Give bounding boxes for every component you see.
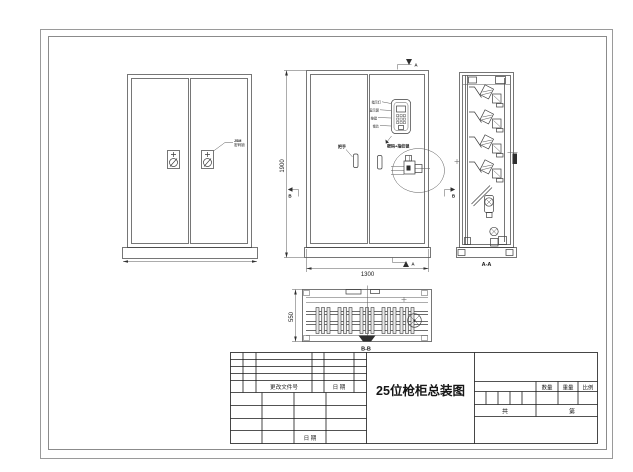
qty-label: 数量 [542,383,553,391]
front-lock-leader [214,143,234,152]
keypad-label-3: 锁芯 [373,124,380,129]
side-handle [513,154,518,165]
assembly-view: 1900 1300 A A B B [280,59,456,278]
scale-label: 比例 [583,383,594,391]
marker-b-left-text: B [288,194,292,199]
keypad-label-1: 显示屏 [369,109,379,113]
section-marker-b-left: B [288,187,299,198]
dim-width: 1300 [307,249,429,278]
section-b-label: B-B [361,347,371,353]
dim-height: 1900 [280,71,306,258]
revision-date-label: 日 期 [333,384,346,391]
front-lock-label-line2: 密码锁 [234,142,245,147]
front-view: JSM 密码锁 [123,75,258,263]
section-marker-b-right: B [445,187,456,198]
sheet-no-label: 第 [569,407,575,415]
drawing-title: 25位枪柜总装图 [376,383,465,398]
front-lock-left [168,151,180,169]
total-sheets-label: 共 [502,407,508,415]
handle-label: 把手 [338,143,346,149]
marker-b-right-text: B [452,194,456,199]
keypad-screen [397,106,406,112]
fan-circle [408,314,422,328]
weight-label: 重量 [563,383,574,391]
front-lock-label-line1: JSM [234,139,241,143]
marker-a-bottom-text: A [411,262,415,267]
section-b-view: 550 B-B [289,286,432,353]
signature-date-label: 日 期 [304,435,317,442]
drawing-svg: JSM 密码锁 1900 1300 A [0,0,633,472]
dim-width-text: 1300 [361,272,375,278]
section-marker-a-top: A [398,59,419,70]
door-handle-right [378,156,383,170]
side-lock-device-2 [490,227,498,246]
keypad-fingerprint [399,126,404,130]
dim-depth: 550 [289,290,303,342]
cad-drawing-sheet: JSM 密码锁 1900 1300 A [0,0,633,472]
title-block: 更改文件号 日 期 日 期 25位枪柜总装图 数量 重量 比例 共 第 [231,353,598,444]
keypad-label-2: 按键 [371,116,378,121]
front-lock-right [202,151,214,169]
door-handle-left [354,154,359,168]
lock-detail-bubble [391,149,445,193]
change-file-no-label: 更改文件号 [270,383,298,391]
marker-a-top-text: A [414,63,418,68]
dim-height-text: 1900 [280,159,286,173]
section-a-label: A-A [482,262,492,268]
lock-unit-label: 密码+指纹锁 [386,143,409,149]
sheet-frame [41,30,613,459]
side-lock-device-1 [485,196,494,218]
keypad-label-0: 指示灯 [371,100,381,105]
section-marker-a-bottom: A [393,258,416,268]
keypad-unit [392,100,411,134]
dim-depth-text: 550 [289,311,295,322]
section-a-view: A-A [455,73,518,269]
